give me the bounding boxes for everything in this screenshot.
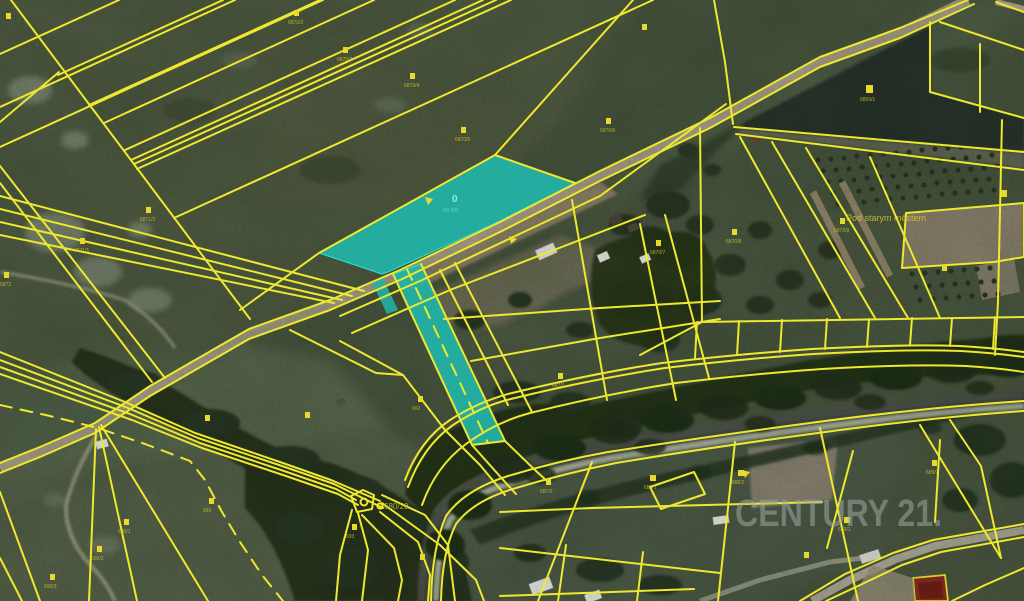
svg-text:691: 691 (203, 508, 212, 514)
svg-text:690/1: 690/1 (118, 529, 131, 535)
svg-text:6871/2: 6871/2 (140, 217, 156, 223)
svg-text:687/2: 687/2 (540, 489, 553, 495)
svg-text:690/3: 690/3 (44, 584, 57, 590)
svg-text:680/20: 680/20 (384, 502, 409, 511)
svg-text:693: 693 (346, 534, 355, 540)
svg-text:Pod starym městem: Pod starym městem (846, 213, 926, 223)
svg-text:6870/5: 6870/5 (455, 137, 471, 143)
svg-text:692: 692 (412, 406, 421, 412)
svg-text:6870/8: 6870/8 (726, 239, 742, 245)
svg-text:6870/9: 6870/9 (834, 228, 850, 234)
svg-text:689/2: 689/2 (926, 470, 939, 476)
svg-text:687/1: 687/1 (552, 383, 565, 389)
svg-text:688/1: 688/1 (644, 485, 657, 491)
svg-text:0: 0 (452, 194, 458, 205)
svg-text:688/2: 688/2 (732, 480, 745, 486)
svg-text:690/2: 690/2 (91, 556, 104, 562)
svg-text:CENTURY 21.: CENTURY 21. (735, 493, 942, 535)
svg-text:6869/1: 6869/1 (860, 97, 876, 103)
svg-text:6870/4: 6870/4 (404, 83, 420, 89)
svg-text:6871/1: 6871/1 (74, 248, 90, 254)
svg-text:68 5/6: 68 5/6 (443, 208, 458, 214)
svg-text:6870/2: 6870/2 (288, 20, 304, 26)
svg-text:6870/3: 6870/3 (337, 57, 353, 63)
svg-text:6872: 6872 (0, 282, 11, 288)
svg-text:6870/7: 6870/7 (650, 250, 666, 256)
svg-text:6870/6: 6870/6 (600, 128, 616, 134)
